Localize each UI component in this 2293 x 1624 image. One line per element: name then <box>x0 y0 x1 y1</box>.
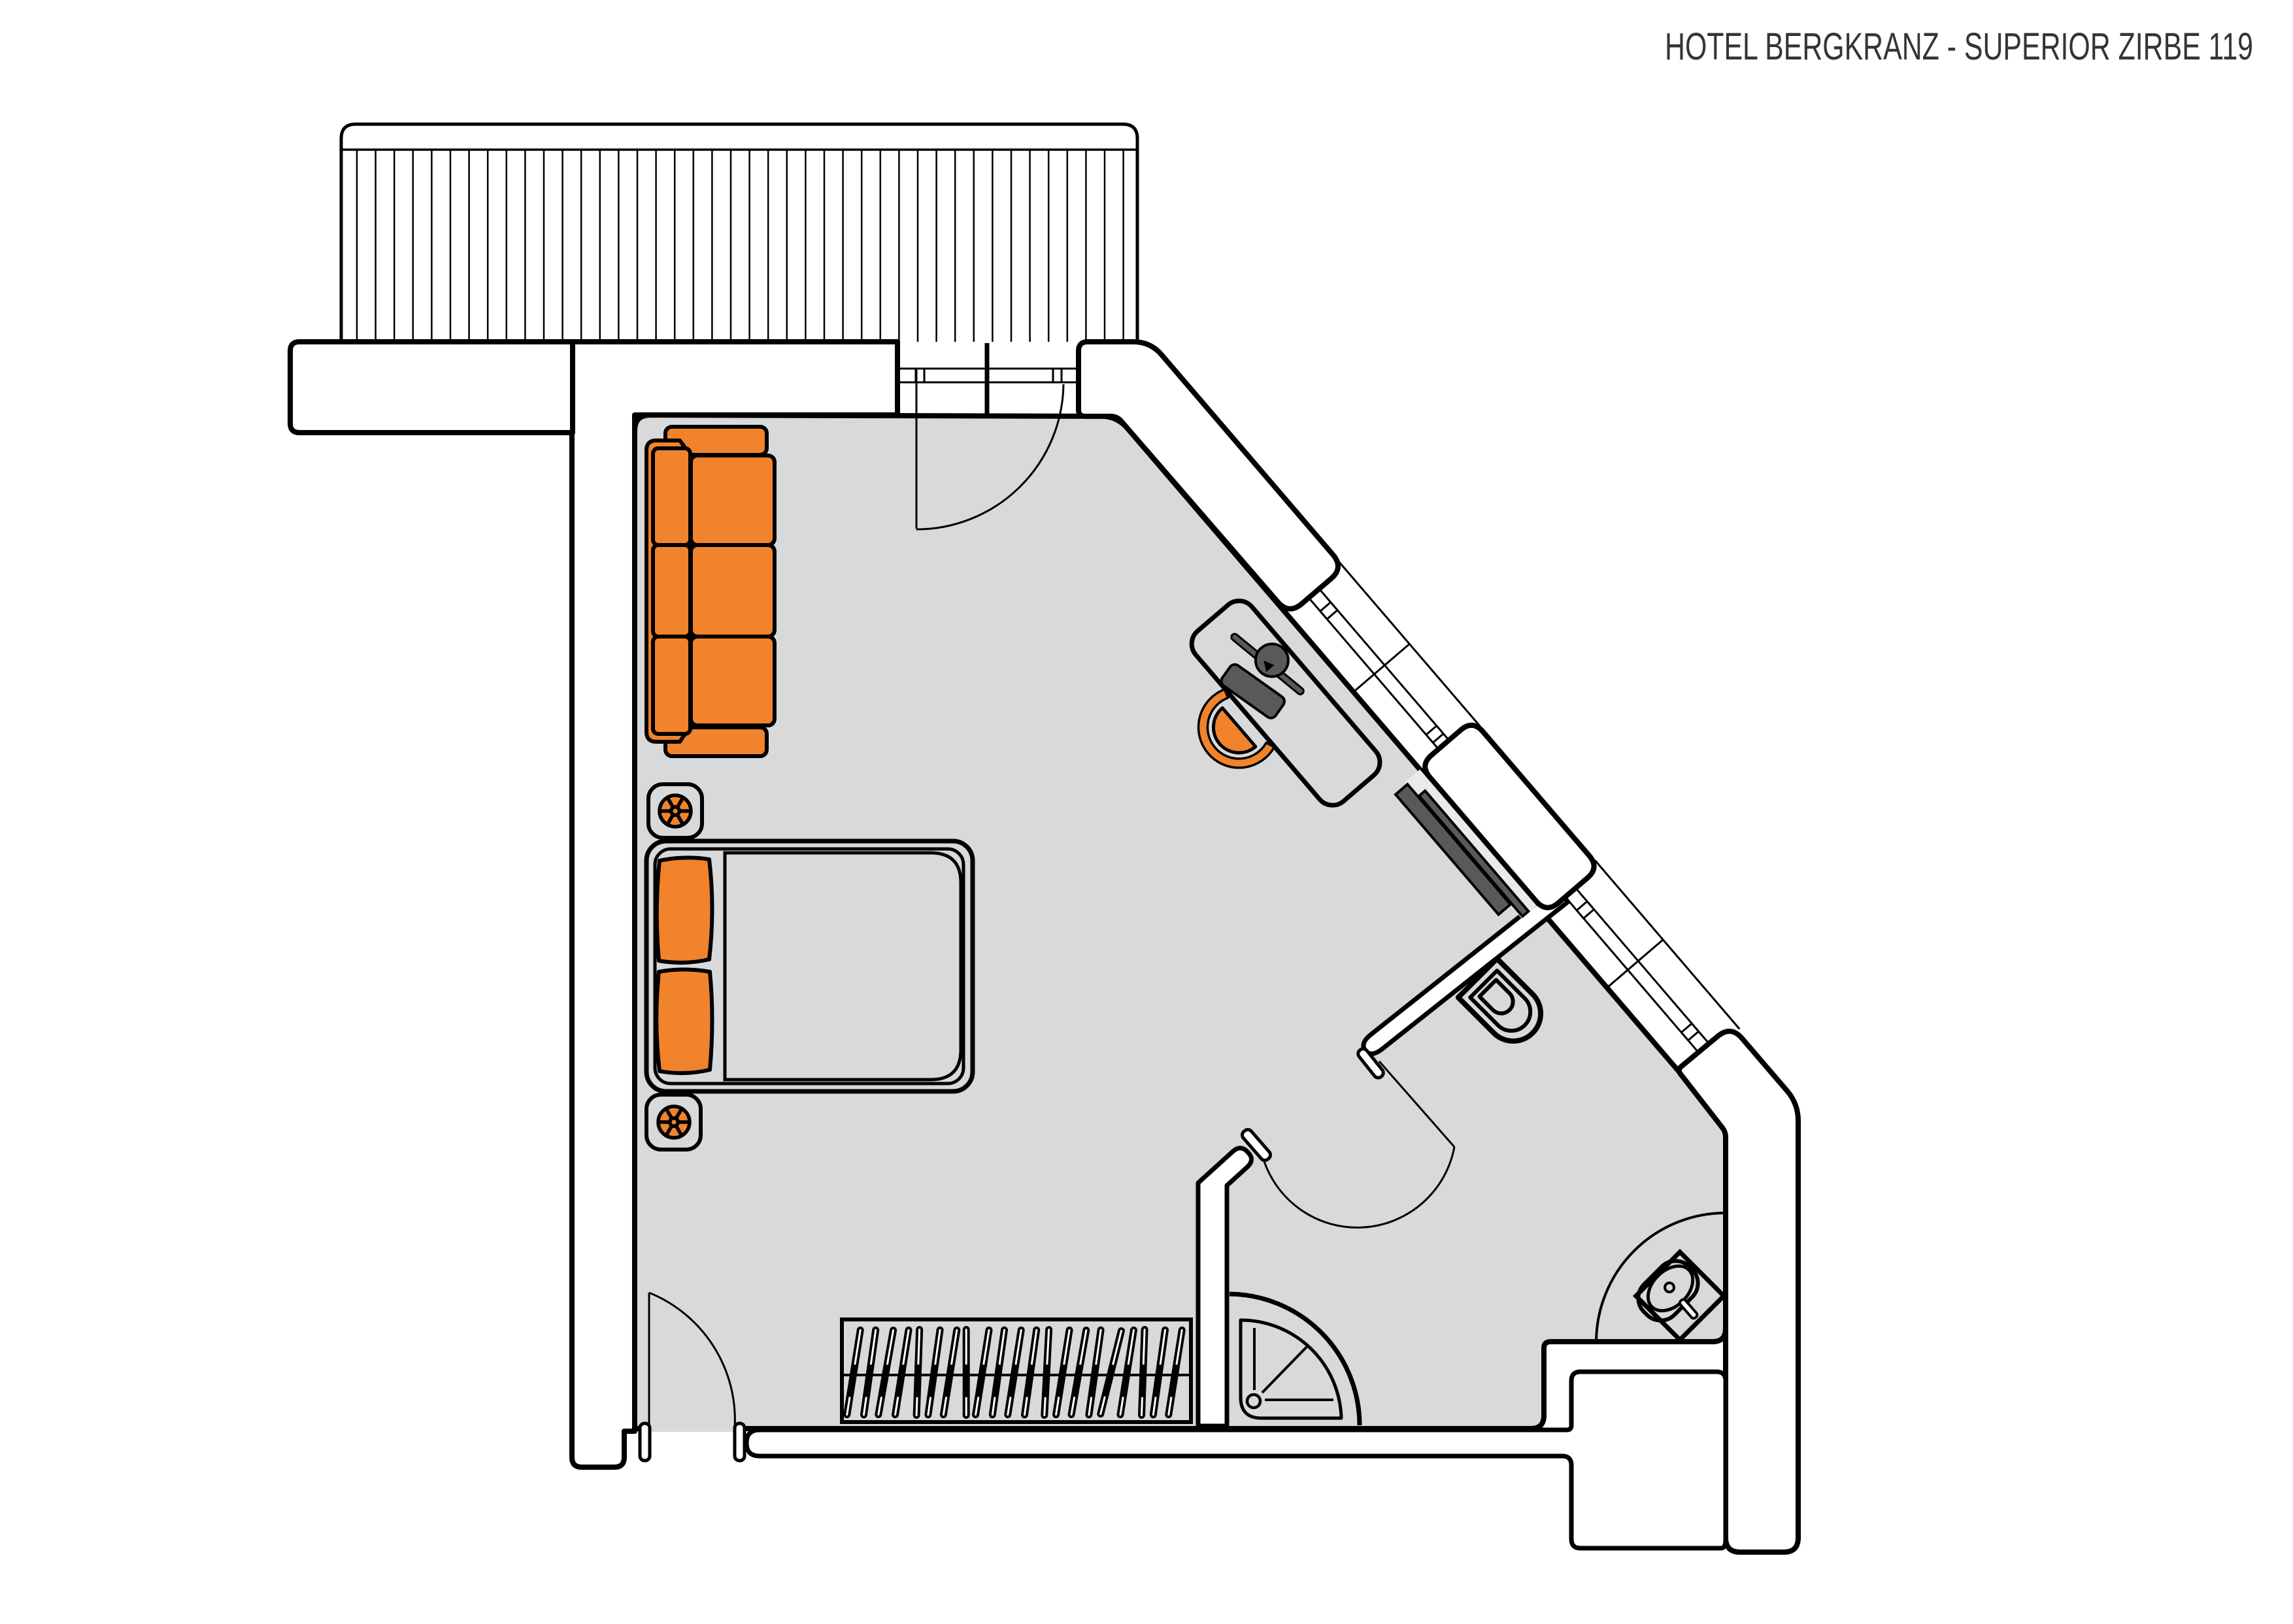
svg-text:HOTEL BERGKRANZ - SUPERIOR ZIR: HOTEL BERGKRANZ - SUPERIOR ZIRBE 119 <box>1665 25 2253 68</box>
